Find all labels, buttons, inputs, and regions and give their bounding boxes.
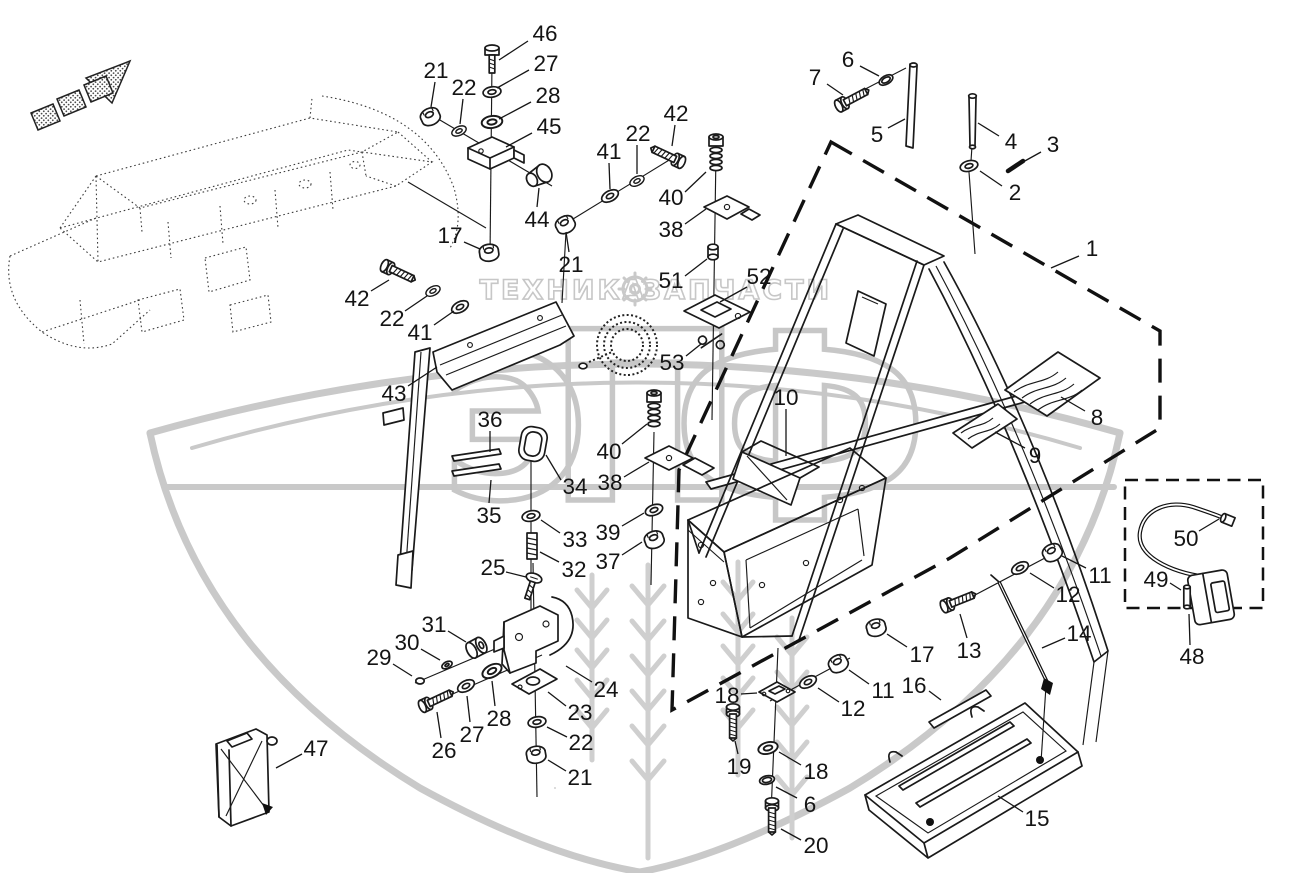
- washer-2: [959, 159, 979, 174]
- pin-29: [416, 678, 424, 684]
- knob-44: [523, 162, 555, 191]
- washer-41: [600, 187, 621, 205]
- leader-line: [506, 133, 532, 147]
- leader-line: [1051, 256, 1079, 268]
- leader-line: [860, 66, 879, 76]
- part-number-17: 17: [909, 642, 934, 667]
- nut-11: [826, 652, 851, 676]
- leader-line: [499, 102, 531, 119]
- part-number-35: 35: [476, 503, 501, 528]
- part-number-19: 19: [726, 754, 751, 779]
- bolt-13: [939, 588, 978, 614]
- part-number-12: 12: [840, 696, 865, 721]
- footstep-plate: [865, 703, 1082, 858]
- leader-line: [548, 760, 566, 771]
- part-number-42: 42: [344, 286, 369, 311]
- washer-28: [480, 661, 504, 681]
- leader-line: [978, 123, 999, 136]
- washer-12: [1010, 559, 1031, 577]
- washer-22: [628, 174, 646, 189]
- leader-line: [1042, 638, 1065, 648]
- leader-line: [888, 119, 905, 128]
- leader-line: [371, 280, 389, 291]
- part-number-48: 48: [1179, 644, 1204, 669]
- part-number-21: 21: [567, 765, 592, 790]
- rod-4: [969, 94, 977, 149]
- washer-18: [757, 740, 779, 756]
- leader-line: [492, 681, 495, 706]
- part-number-38: 38: [597, 470, 622, 495]
- part-number-13: 13: [956, 638, 981, 663]
- nut-17: [479, 243, 500, 262]
- bushing-31: [464, 636, 490, 660]
- part-number-41: 41: [596, 139, 621, 164]
- part-number-7: 7: [809, 65, 822, 90]
- part-number-52: 52: [746, 264, 771, 289]
- part-number-41: 41: [407, 320, 432, 345]
- part-number-20: 20: [803, 833, 828, 858]
- leader-line: [499, 41, 528, 60]
- nut-21: [553, 213, 578, 237]
- part-number-21: 21: [423, 58, 448, 83]
- part-number-24: 24: [593, 677, 618, 702]
- part-number-6: 6: [804, 792, 817, 817]
- leader-line: [548, 692, 566, 706]
- part-number-23: 23: [567, 700, 592, 725]
- plate-23: [512, 669, 557, 694]
- part-number-22: 22: [568, 730, 593, 755]
- leader-line: [497, 70, 529, 88]
- canister-47: [216, 729, 277, 826]
- part-number-27: 27: [459, 722, 484, 747]
- leader-line: [818, 688, 839, 702]
- strip-5: [906, 63, 917, 148]
- leader-line: [1189, 614, 1190, 645]
- leader-line: [685, 172, 706, 192]
- bolt-26: [417, 686, 456, 714]
- part-number-40: 40: [658, 185, 683, 210]
- leader-line: [685, 259, 707, 276]
- part-number-28: 28: [535, 83, 560, 108]
- leader-line: [431, 82, 435, 107]
- pin-3: [1008, 161, 1023, 171]
- part-number-22: 22: [451, 75, 476, 100]
- part-number-3: 3: [1047, 132, 1060, 157]
- washer-22: [450, 124, 468, 138]
- leader-line: [1199, 519, 1219, 531]
- part-number-34: 34: [562, 474, 587, 499]
- part-number-8: 8: [1091, 405, 1104, 430]
- leader-line: [506, 572, 526, 577]
- leader-line: [1030, 573, 1054, 588]
- leader-line: [464, 242, 480, 249]
- part-number-53: 53: [659, 350, 684, 375]
- bolt-42: [379, 258, 418, 286]
- washer-28: [481, 115, 503, 130]
- part-number-9: 9: [1029, 443, 1042, 468]
- part-number-49: 49: [1143, 567, 1168, 592]
- part-number-17: 17: [437, 223, 462, 248]
- part-number-18: 18: [714, 683, 739, 708]
- part-number-36: 36: [477, 407, 502, 432]
- leader-line: [827, 84, 843, 95]
- leader-line: [995, 432, 1025, 448]
- leader-line: [421, 649, 440, 660]
- nut-17: [865, 617, 888, 638]
- part-number-1: 1: [1086, 236, 1099, 261]
- direction-arrow-icon: [31, 61, 130, 130]
- part-number-12: 12: [1055, 582, 1080, 607]
- part-number-43: 43: [381, 381, 406, 406]
- washer-22: [527, 715, 547, 728]
- spring-32: [527, 533, 537, 559]
- part-number-18: 18: [803, 759, 828, 784]
- nut-21: [525, 745, 547, 765]
- part-number-38: 38: [658, 217, 683, 242]
- part-number-22: 22: [625, 121, 650, 146]
- part-number-46: 46: [532, 21, 557, 46]
- part-number-4: 4: [1005, 129, 1018, 154]
- part-number-31: 31: [421, 612, 446, 637]
- leader-line: [960, 614, 967, 638]
- stud-51: [708, 244, 718, 260]
- leader-line: [929, 691, 941, 700]
- pin-49: [1184, 585, 1190, 609]
- leader-line: [1023, 152, 1041, 162]
- part-number-6: 6: [842, 47, 855, 72]
- leader-line: [609, 163, 610, 189]
- part-number-33: 33: [562, 527, 587, 552]
- part-number-50: 50: [1173, 526, 1198, 551]
- screw-46: [485, 45, 499, 73]
- washer-6: [877, 73, 894, 88]
- capscrew-40: [709, 134, 723, 171]
- leader-line: [467, 696, 470, 722]
- part-number-5: 5: [871, 122, 884, 147]
- part-number-2: 2: [1009, 180, 1022, 205]
- inset-box: [1125, 480, 1263, 625]
- part-number-28: 28: [486, 706, 511, 731]
- part-number-10: 10: [773, 385, 798, 410]
- part-number-51: 51: [658, 268, 683, 293]
- leader-line: [672, 125, 675, 146]
- leader-line: [980, 171, 1002, 186]
- part-number-26: 26: [431, 738, 456, 763]
- leader-line: [685, 209, 706, 224]
- leader-line: [460, 99, 463, 124]
- part-number-47: 47: [303, 736, 328, 761]
- bolt-42: [648, 142, 687, 170]
- part-number-39: 39: [595, 520, 620, 545]
- part-number-15: 15: [1024, 806, 1049, 831]
- part-number-22: 22: [379, 306, 404, 331]
- part-number-11: 11: [1088, 563, 1111, 588]
- part-number-25: 25: [480, 555, 505, 580]
- part-number-40: 40: [596, 439, 621, 464]
- part-number-11: 11: [871, 678, 894, 703]
- leader-line: [537, 188, 539, 207]
- leader-line: [566, 232, 569, 252]
- washer-30: [441, 660, 454, 671]
- rod-14: [991, 575, 1053, 695]
- parts-catalog-figure: Э П Ф ТЕХНИКА ЗАПЧАСТИ: [0, 0, 1289, 873]
- leader-line: [405, 296, 427, 311]
- bolt-7: [833, 84, 872, 113]
- part-number-14: 14: [1066, 621, 1091, 646]
- bracket-38-top: [704, 196, 760, 220]
- leader-line: [393, 664, 412, 676]
- part-number-42: 42: [663, 101, 688, 126]
- part-number-45: 45: [536, 114, 561, 139]
- exploded-parts-diagram: Э П Ф ТЕХНИКА ЗАПЧАСТИ: [0, 0, 1289, 873]
- mount-bracket-24: [494, 597, 573, 673]
- part-number-32: 32: [561, 557, 586, 582]
- leader-line: [547, 727, 567, 737]
- washer-27: [456, 677, 477, 695]
- part-number-44: 44: [524, 207, 549, 232]
- switch-48: [1187, 569, 1235, 625]
- part-number-27: 27: [533, 51, 558, 76]
- part-number-29: 29: [366, 645, 391, 670]
- leader-line: [276, 754, 302, 768]
- part-number-30: 30: [394, 630, 419, 655]
- part-number-21: 21: [558, 252, 583, 277]
- nut-21: [418, 105, 442, 128]
- leader-line: [437, 712, 441, 738]
- part-number-16: 16: [901, 673, 926, 698]
- leader-line: [1170, 583, 1181, 590]
- leader-line: [849, 670, 869, 684]
- leader-line: [448, 631, 466, 642]
- leader-line: [887, 634, 907, 647]
- part-number-37: 37: [595, 549, 620, 574]
